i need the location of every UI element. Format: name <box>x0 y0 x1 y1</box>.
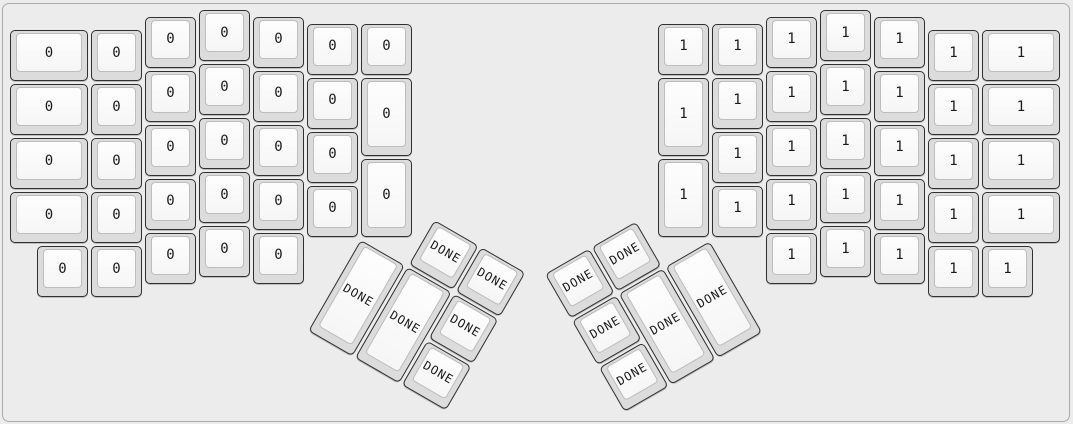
keycap-label: DONE <box>694 282 729 311</box>
keycap-top-surface: DONE <box>605 347 658 400</box>
keycap-label: DONE <box>648 309 683 338</box>
keycap-top-surface: DONE <box>598 227 651 280</box>
keycap-label: DONE <box>560 266 595 295</box>
keycap-label: DONE <box>607 239 642 268</box>
keycap-top-surface: DONE <box>578 301 631 354</box>
keycap-label: DONE <box>614 360 649 389</box>
keyboard-canvas: 0000000000000000000000000000000011111111… <box>0 0 1073 424</box>
keycap-top-surface: DONE <box>551 254 604 307</box>
keycap-label: DONE <box>587 313 622 342</box>
